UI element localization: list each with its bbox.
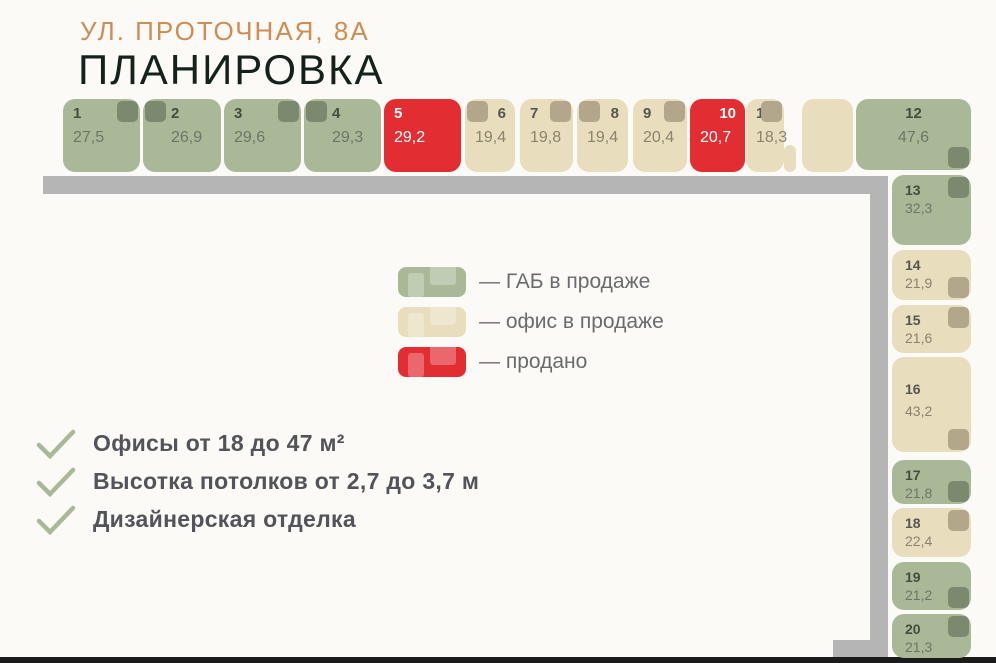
legend-row-office: — офис в продаже — [398, 306, 664, 337]
entrance-marker — [948, 510, 969, 531]
unit-fragment — [784, 145, 796, 172]
unit-number: 20 — [905, 621, 921, 637]
unit-area: 21,6 — [905, 330, 932, 346]
legend-label-office: — офис в продаже — [479, 310, 664, 334]
unit-7[interactable]: 719,8 — [520, 99, 573, 172]
unit-10[interactable]: 1020,7 — [690, 99, 745, 172]
unit-area: 21,9 — [905, 275, 932, 291]
unit-area: 26,9 — [171, 129, 202, 147]
entrance-marker — [117, 101, 138, 122]
legend-row-gab: — ГАБ в продаже — [398, 266, 664, 297]
feature-text: Офисы от 18 до 47 м² — [93, 430, 345, 457]
unit-11[interactable]: 1118,3 — [746, 99, 784, 172]
legend-label-sold: — продано — [479, 350, 587, 374]
unit-number: 14 — [905, 257, 921, 273]
unit-5[interactable]: 529,2 — [384, 99, 461, 172]
unit-2[interactable]: 226,9 — [143, 99, 221, 172]
entrance-marker — [948, 481, 969, 502]
unit-area: 21,2 — [905, 587, 932, 603]
unit-number: 7 — [530, 105, 538, 122]
entrance-marker — [278, 101, 299, 122]
unit-number: 6 — [498, 105, 506, 122]
unit-area: 43,2 — [905, 403, 932, 419]
unit-area: 29,2 — [394, 129, 425, 147]
check-icon — [36, 467, 76, 497]
page-title: ПЛАНИРОВКА — [78, 46, 385, 94]
unit-9[interactable]: 920,4 — [633, 99, 687, 172]
unit-3[interactable]: 329,6 — [224, 99, 301, 172]
entrance-marker — [948, 616, 969, 637]
unit-number: 16 — [905, 381, 921, 397]
entrance-marker — [948, 177, 969, 198]
unit-area: 21,3 — [905, 639, 932, 655]
unit-16[interactable]: 1643,2 — [892, 357, 971, 452]
legend: — ГАБ в продаже — офис в продаже — прода… — [398, 266, 664, 377]
unit-number: 19 — [905, 569, 921, 585]
unit-number: 15 — [905, 312, 921, 328]
unit-number: 4 — [332, 105, 340, 122]
feature-item: Офисы от 18 до 47 м² — [36, 430, 479, 457]
unit-6[interactable]: 619,4 — [465, 99, 515, 172]
unit-15[interactable]: 1521,6 — [892, 305, 971, 353]
unit-8[interactable]: 819,4 — [577, 99, 628, 172]
unit-14[interactable]: 1421,9 — [892, 250, 971, 300]
unit-number: 5 — [394, 105, 402, 122]
check-icon — [36, 429, 76, 459]
entrance-marker — [948, 277, 969, 298]
entrance-marker — [550, 101, 571, 122]
unit-20[interactable]: 2021,3 — [892, 614, 971, 658]
entrance-marker — [761, 101, 782, 122]
floorplan-page: УЛ. ПРОТОЧНАЯ, 8А ПЛАНИРОВКА 127,5226,93… — [0, 0, 996, 663]
unit-17[interactable]: 1721,8 — [892, 460, 971, 504]
entrance-marker — [948, 587, 969, 608]
legend-row-sold: — продано — [398, 346, 664, 377]
unit-area: 47,6 — [856, 129, 971, 147]
unit-area: 19,8 — [530, 129, 561, 147]
unit-13[interactable]: 1332,3 — [892, 175, 971, 245]
legend-swatch-gab — [398, 267, 466, 297]
unit-area: 22,4 — [905, 533, 932, 549]
unit-area: 19,4 — [475, 129, 506, 147]
legend-label-gab: — ГАБ в продаже — [479, 270, 650, 294]
unit-area: 29,3 — [332, 129, 363, 147]
unit-area: 19,4 — [587, 129, 618, 147]
unit-area: 32,3 — [905, 200, 932, 216]
unit-12[interactable]: 1247,6 — [856, 99, 971, 170]
legend-swatch-sold — [398, 347, 466, 377]
unit-area: 20,4 — [643, 129, 674, 147]
wall-vertical — [870, 176, 888, 657]
check-icon — [36, 505, 76, 535]
entrance-marker — [948, 307, 969, 328]
unit-area: 21,8 — [905, 485, 932, 501]
feature-item: Дизайнерская отделка — [36, 506, 479, 533]
unit-number: 13 — [905, 182, 921, 198]
unit-18[interactable]: 1822,4 — [892, 508, 971, 557]
unit-area: 20,7 — [700, 129, 731, 147]
entrance-marker — [306, 101, 327, 122]
entrance-marker — [467, 101, 488, 122]
unit-fragment — [802, 99, 853, 172]
unit-number: 1 — [73, 105, 81, 122]
unit-area: 18,3 — [756, 129, 787, 147]
unit-area: 29,6 — [234, 129, 265, 147]
unit-number: 18 — [905, 515, 921, 531]
unit-number: 17 — [905, 467, 921, 483]
entrance-marker — [948, 429, 969, 450]
unit-number: 3 — [234, 105, 242, 122]
unit-19[interactable]: 1921,2 — [892, 562, 971, 610]
unit-4[interactable]: 429,3 — [304, 99, 381, 172]
wall-horizontal — [43, 176, 888, 194]
entrance-marker — [579, 101, 600, 122]
features-list: Офисы от 18 до 47 м² Высотка потолков от… — [36, 430, 479, 533]
unit-number: 8 — [611, 105, 619, 122]
feature-text: Высотка потолков от 2,7 до 3,7 м — [93, 468, 479, 495]
entrance-marker — [948, 147, 969, 168]
wall-foot — [833, 640, 888, 657]
feature-item: Высотка потолков от 2,7 до 3,7 м — [36, 468, 479, 495]
entrance-marker — [664, 101, 685, 122]
unit-area: 27,5 — [73, 129, 104, 147]
entrance-marker — [145, 101, 166, 122]
feature-text: Дизайнерская отделка — [93, 506, 356, 533]
building-address: УЛ. ПРОТОЧНАЯ, 8А — [80, 16, 370, 47]
unit-number: 10 — [719, 105, 736, 122]
bottom-edge-bar — [0, 657, 996, 663]
unit-number: 9 — [643, 105, 651, 122]
legend-swatch-office — [398, 307, 466, 337]
unit-number: 2 — [171, 105, 179, 122]
unit-number: 12 — [856, 105, 971, 122]
unit-1[interactable]: 127,5 — [63, 99, 140, 172]
